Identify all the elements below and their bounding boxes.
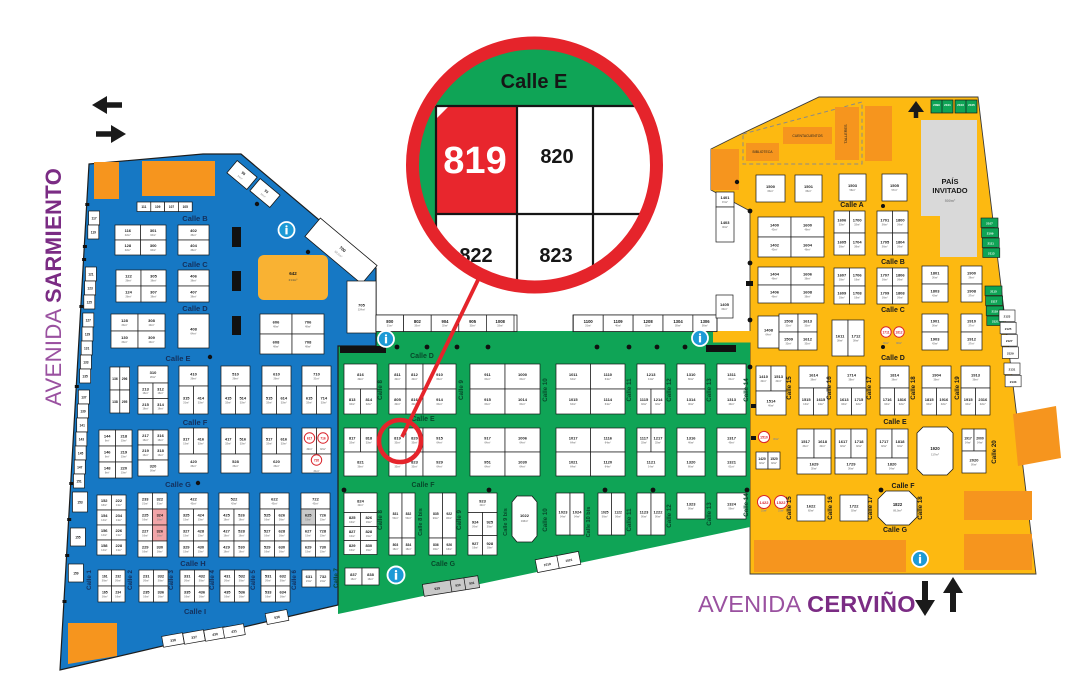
svg-text:26m²: 26m²	[882, 222, 888, 226]
svg-text:16m²: 16m²	[142, 453, 148, 457]
svg-text:26m²: 26m²	[882, 244, 888, 248]
svg-text:1708: 1708	[853, 291, 863, 296]
svg-text:905: 905	[469, 319, 477, 324]
svg-text:533: 533	[265, 590, 272, 595]
svg-text:40m²: 40m²	[728, 440, 734, 444]
svg-text:1323: 1323	[687, 502, 697, 507]
svg-text:1313: 1313	[727, 397, 737, 402]
svg-text:1606: 1606	[803, 272, 813, 277]
svg-text:1917: 1917	[964, 437, 972, 441]
svg-text:18m²: 18m²	[854, 277, 860, 281]
svg-text:430: 430	[197, 545, 204, 550]
svg-text:16m²: 16m²	[882, 277, 888, 281]
svg-text:Calle A: Calle A	[840, 202, 863, 209]
svg-text:922: 922	[446, 512, 452, 516]
svg-text:436: 436	[198, 590, 205, 595]
svg-text:326: 326	[156, 529, 163, 534]
svg-text:39m²: 39m²	[933, 377, 939, 381]
svg-text:1717: 1717	[880, 439, 890, 444]
svg-text:18m²: 18m²	[433, 547, 439, 551]
svg-text:31m²: 31m²	[761, 509, 767, 513]
svg-text:309: 309	[148, 335, 155, 340]
svg-text:143: 143	[79, 437, 85, 441]
svg-text:42m²: 42m²	[190, 501, 196, 505]
svg-text:36m²: 36m²	[190, 278, 196, 282]
svg-text:Calle C: Calle C	[881, 307, 905, 314]
svg-text:26m²: 26m²	[897, 295, 903, 299]
svg-text:816: 816	[357, 372, 364, 377]
svg-text:1618: 1618	[818, 439, 828, 444]
svg-text:124m²: 124m²	[358, 307, 366, 311]
svg-text:1006: 1006	[518, 436, 528, 441]
svg-text:33m²: 33m²	[802, 444, 808, 448]
svg-text:229: 229	[142, 545, 149, 550]
svg-text:32m²: 32m²	[771, 461, 777, 465]
svg-text:1514: 1514	[767, 399, 777, 404]
svg-text:532: 532	[238, 574, 245, 579]
svg-text:32m²: 32m²	[394, 464, 400, 468]
svg-text:1015: 1015	[569, 397, 579, 402]
svg-text:Calle 9: Calle 9	[456, 509, 463, 530]
svg-text:27m²: 27m²	[968, 341, 974, 345]
svg-text:928: 928	[486, 541, 493, 546]
svg-text:1712: 1712	[852, 334, 862, 339]
svg-text:1405: 1405	[720, 302, 730, 307]
svg-text:614: 614	[280, 396, 287, 401]
svg-text:925: 925	[486, 520, 493, 525]
svg-text:213: 213	[142, 386, 149, 391]
svg-text:39m²: 39m²	[357, 464, 363, 468]
svg-text:931: 931	[469, 581, 475, 586]
svg-text:Calle 13: Calle 13	[706, 502, 713, 526]
svg-text:145: 145	[78, 451, 84, 455]
svg-text:20m²: 20m²	[184, 578, 190, 582]
svg-text:1114: 1114	[604, 397, 613, 402]
svg-text:1311: 1311	[727, 372, 736, 377]
svg-text:800: 800	[386, 319, 394, 324]
svg-text:38m²: 38m²	[804, 276, 810, 280]
svg-text:138: 138	[112, 400, 118, 404]
svg-text:317: 317	[183, 437, 190, 442]
svg-text:1316: 1316	[687, 436, 697, 441]
svg-text:2117: 2117	[991, 300, 998, 304]
svg-text:20m²: 20m²	[158, 578, 164, 582]
svg-text:828: 828	[365, 529, 372, 534]
svg-text:2107: 2107	[986, 222, 993, 226]
svg-text:832: 832	[406, 512, 412, 516]
svg-text:64m²: 64m²	[605, 377, 611, 381]
svg-text:62m²: 62m²	[808, 508, 814, 512]
svg-text:32m²: 32m²	[414, 324, 420, 328]
svg-text:1122: 1122	[615, 511, 622, 515]
svg-text:1422: 1422	[760, 500, 770, 505]
svg-text:228: 228	[115, 543, 122, 548]
svg-text:820: 820	[540, 146, 573, 168]
svg-text:139: 139	[80, 409, 86, 413]
svg-text:109: 109	[155, 205, 161, 209]
svg-text:627: 627	[305, 529, 312, 534]
svg-text:50m²: 50m²	[655, 514, 661, 518]
svg-text:18m²: 18m²	[101, 503, 107, 507]
svg-text:1608: 1608	[803, 290, 813, 295]
svg-text:826: 826	[365, 515, 372, 520]
svg-text:406: 406	[190, 274, 197, 279]
svg-text:18m²: 18m²	[446, 547, 452, 551]
svg-text:812: 812	[411, 372, 418, 377]
svg-text:20m²: 20m²	[224, 578, 230, 582]
svg-text:43m²: 43m²	[932, 341, 938, 345]
svg-text:Calle 16: Calle 16	[826, 376, 833, 400]
svg-text:135: 135	[82, 374, 88, 378]
svg-text:32m²: 32m²	[645, 324, 651, 328]
svg-text:23m²: 23m²	[121, 323, 127, 327]
svg-text:Calle 9: Calle 9	[458, 379, 465, 400]
svg-text:43m²: 43m²	[771, 227, 777, 231]
svg-text:36m²: 36m²	[150, 278, 156, 282]
svg-text:300: 300	[150, 243, 157, 248]
svg-text:33m²: 33m²	[641, 440, 647, 444]
svg-text:1116: 1116	[604, 436, 613, 441]
svg-text:Calle 1: Calle 1	[86, 569, 93, 590]
svg-text:1818: 1818	[896, 439, 906, 444]
svg-text:32m²: 32m²	[394, 440, 400, 444]
svg-text:32m²: 32m²	[349, 440, 355, 444]
svg-text:122: 122	[125, 274, 132, 279]
svg-text:830: 830	[365, 543, 372, 548]
svg-text:2103: 2103	[957, 103, 964, 107]
svg-text:331: 331	[184, 574, 191, 579]
svg-text:1402: 1402	[770, 243, 780, 248]
svg-text:1607: 1607	[837, 273, 847, 278]
svg-text:1611: 1611	[836, 334, 845, 339]
svg-text:39m²: 39m²	[883, 341, 889, 345]
svg-text:38m²: 38m²	[804, 294, 810, 298]
svg-text:802: 802	[414, 319, 422, 324]
svg-text:40m²: 40m²	[615, 324, 621, 328]
svg-text:48m²: 48m²	[305, 344, 311, 348]
svg-text:1913: 1913	[971, 373, 981, 378]
svg-text:29m²: 29m²	[125, 294, 131, 298]
svg-text:234: 234	[115, 513, 122, 518]
svg-text:Calle 5: Calle 5	[250, 569, 257, 590]
svg-text:1522: 1522	[777, 500, 787, 505]
svg-text:1109: 1109	[614, 319, 624, 324]
svg-text:Calle 4: Calle 4	[209, 569, 216, 590]
svg-text:42m²: 42m²	[357, 503, 363, 507]
svg-text:1110: 1110	[604, 372, 613, 377]
svg-text:16m²: 16m²	[349, 520, 355, 524]
svg-text:30m²: 30m²	[932, 275, 938, 279]
svg-text:BIBLIOTECA: BIBLIOTECA	[753, 150, 774, 154]
svg-text:1023: 1023	[559, 510, 569, 515]
svg-text:728: 728	[319, 529, 326, 534]
svg-text:136: 136	[112, 377, 118, 381]
svg-text:16m²: 16m²	[238, 533, 244, 537]
svg-text:130: 130	[121, 335, 128, 340]
svg-text:24m²: 24m²	[889, 466, 895, 470]
svg-text:26m²: 26m²	[702, 324, 708, 328]
svg-text:40m²: 40m²	[728, 402, 734, 406]
svg-text:38m²: 38m²	[854, 244, 860, 248]
svg-text:322: 322	[156, 497, 163, 502]
svg-text:1030: 1030	[518, 460, 528, 465]
svg-text:50m²: 50m²	[641, 514, 647, 518]
svg-text:21m²: 21m²	[157, 501, 163, 505]
svg-text:835: 835	[433, 512, 439, 516]
svg-text:1915: 1915	[964, 397, 974, 402]
svg-text:16m²: 16m²	[157, 391, 163, 395]
svg-text:308: 308	[148, 318, 155, 323]
svg-text:1808: 1808	[896, 291, 906, 296]
svg-text:Calle 15: Calle 15	[786, 496, 793, 520]
svg-text:26m²: 26m²	[971, 462, 977, 466]
svg-text:16m²: 16m²	[142, 533, 148, 537]
svg-text:1500: 1500	[766, 184, 776, 189]
svg-text:2113: 2113	[988, 252, 995, 256]
svg-text:Calle 19: Calle 19	[954, 376, 961, 400]
svg-text:31m²: 31m²	[313, 376, 319, 380]
svg-text:911: 911	[484, 372, 491, 377]
svg-text:15m²: 15m²	[183, 441, 189, 445]
svg-text:18m²: 18m²	[405, 547, 411, 551]
svg-text:616: 616	[280, 437, 287, 442]
svg-text:27m²: 27m²	[968, 323, 974, 327]
svg-text:1024: 1024	[573, 510, 583, 515]
svg-text:314: 314	[157, 402, 164, 407]
svg-text:510: 510	[232, 372, 239, 377]
svg-text:Calle B: Calle B	[881, 259, 905, 266]
svg-text:61m²: 61m²	[728, 464, 734, 468]
svg-text:1903: 1903	[931, 337, 941, 342]
svg-text:16m²: 16m²	[142, 438, 148, 442]
svg-text:15m²: 15m²	[183, 533, 189, 537]
svg-text:2101: 2101	[944, 103, 951, 107]
svg-text:18m²: 18m²	[472, 546, 478, 550]
svg-text:20m²: 20m²	[472, 524, 478, 528]
svg-text:128: 128	[124, 243, 131, 248]
svg-text:231: 231	[143, 574, 150, 579]
svg-text:528: 528	[238, 529, 245, 534]
svg-text:Calle F: Calle F	[183, 418, 208, 427]
svg-text:1515: 1515	[802, 397, 812, 402]
svg-text:720: 720	[314, 459, 320, 463]
svg-text:16m²: 16m²	[184, 594, 190, 598]
svg-text:Calle F: Calle F	[892, 483, 916, 490]
svg-text:16m²: 16m²	[238, 549, 244, 553]
svg-text:60m²: 60m²	[688, 464, 694, 468]
svg-text:29m²: 29m²	[125, 278, 131, 282]
svg-text:117m²: 117m²	[931, 453, 939, 457]
svg-text:428: 428	[197, 529, 204, 534]
svg-text:525: 525	[264, 513, 271, 518]
svg-text:18m²: 18m²	[392, 547, 398, 551]
svg-text:407: 407	[190, 290, 197, 295]
svg-text:924: 924	[472, 520, 479, 525]
svg-text:1408: 1408	[764, 328, 774, 333]
svg-text:32m²: 32m²	[394, 402, 400, 406]
svg-text:Calle 6: Calle 6	[291, 569, 298, 590]
svg-text:226: 226	[115, 528, 122, 533]
svg-text:813: 813	[349, 397, 356, 402]
svg-text:838: 838	[367, 572, 374, 577]
svg-text:1503: 1503	[848, 183, 858, 188]
svg-text:16m²: 16m²	[157, 407, 163, 411]
svg-text:1304: 1304	[673, 319, 683, 324]
svg-text:9m²: 9m²	[105, 470, 110, 474]
svg-text:38m²: 38m²	[839, 244, 845, 248]
svg-text:16m²: 16m²	[264, 533, 270, 537]
svg-text:819: 819	[443, 140, 506, 182]
svg-text:2119: 2119	[991, 310, 998, 314]
svg-text:40m²: 40m²	[722, 225, 728, 229]
svg-text:825: 825	[349, 515, 356, 520]
svg-text:32m²: 32m²	[150, 233, 156, 237]
svg-text:318: 318	[157, 448, 164, 453]
svg-text:15m²: 15m²	[121, 438, 127, 442]
svg-text:Calle D: Calle D	[182, 304, 208, 313]
svg-text:29m²: 29m²	[190, 376, 196, 380]
svg-text:2111: 2111	[988, 242, 995, 246]
svg-text:31m²: 31m²	[585, 324, 591, 328]
svg-text:1510: 1510	[760, 436, 768, 440]
svg-text:9m²: 9m²	[105, 454, 110, 458]
svg-text:90m²: 90m²	[446, 516, 452, 520]
svg-text:1306: 1306	[700, 319, 710, 324]
svg-text:151: 151	[76, 479, 82, 483]
svg-text:435: 435	[224, 590, 231, 595]
svg-text:1612: 1612	[803, 337, 813, 342]
svg-text:16m²: 16m²	[158, 594, 164, 598]
svg-text:49m²: 49m²	[804, 247, 810, 251]
svg-text:1120: 1120	[603, 460, 612, 465]
svg-text:30m²: 30m²	[848, 466, 854, 470]
svg-text:336: 336	[157, 590, 164, 595]
svg-text:Calle D: Calle D	[881, 355, 905, 362]
svg-text:1121: 1121	[647, 460, 656, 465]
svg-text:432: 432	[198, 574, 205, 579]
svg-text:527: 527	[264, 529, 271, 534]
svg-text:1115: 1115	[640, 397, 649, 402]
svg-text:1609: 1609	[837, 291, 847, 296]
svg-text:29m²: 29m²	[232, 376, 238, 380]
svg-text:20m²: 20m²	[115, 578, 121, 582]
svg-text:32m²: 32m²	[240, 400, 246, 404]
svg-text:625: 625	[305, 513, 312, 518]
svg-text:1324: 1324	[727, 502, 737, 507]
svg-text:23m²: 23m²	[121, 340, 127, 344]
svg-text:32m²: 32m²	[881, 444, 887, 448]
svg-text:617: 617	[307, 437, 313, 441]
svg-text:818: 818	[365, 436, 372, 441]
svg-text:1517: 1517	[801, 439, 811, 444]
svg-text:708: 708	[305, 340, 312, 345]
svg-text:634: 634	[279, 590, 286, 595]
svg-text:61m²: 61m²	[728, 377, 734, 381]
svg-text:32m²: 32m²	[320, 447, 326, 451]
svg-text:2133: 2133	[1010, 380, 1017, 384]
svg-text:16m²: 16m²	[366, 548, 372, 552]
svg-text:16m²: 16m²	[157, 453, 163, 457]
svg-text:1814: 1814	[890, 373, 900, 378]
svg-text:32m²: 32m²	[125, 233, 131, 237]
svg-text:32m²: 32m²	[839, 222, 845, 226]
svg-text:814: 814	[365, 397, 372, 402]
svg-text:726: 726	[319, 513, 326, 518]
svg-text:48m²: 48m²	[273, 324, 279, 328]
svg-text:155: 155	[75, 535, 81, 539]
svg-text:917: 917	[484, 436, 491, 441]
svg-text:24m²: 24m²	[306, 579, 312, 583]
svg-text:32m²: 32m²	[840, 444, 846, 448]
svg-text:829: 829	[349, 543, 356, 548]
svg-text:1912: 1912	[967, 337, 977, 342]
svg-text:811: 811	[394, 372, 401, 377]
svg-text:16m²: 16m²	[366, 520, 372, 524]
svg-text:1214: 1214	[654, 397, 664, 402]
svg-text:320: 320	[150, 464, 157, 469]
svg-text:14m²: 14m²	[648, 464, 654, 468]
svg-text:60m²: 60m²	[721, 307, 727, 311]
svg-text:15m²: 15m²	[305, 533, 311, 537]
svg-text:516: 516	[239, 437, 246, 442]
svg-text:706: 706	[305, 320, 312, 325]
svg-text:64m²: 64m²	[765, 332, 771, 336]
svg-text:1501: 1501	[804, 184, 814, 189]
svg-text:64m²: 64m²	[605, 440, 611, 444]
svg-text:325: 325	[183, 513, 190, 518]
svg-text:32m²: 32m²	[819, 444, 825, 448]
svg-text:16m²: 16m²	[264, 517, 270, 521]
svg-text:111: 111	[141, 205, 146, 209]
svg-text:1600: 1600	[803, 223, 813, 228]
svg-text:1117: 1117	[640, 436, 649, 441]
svg-text:15m²: 15m²	[320, 533, 326, 537]
svg-text:Calle F: Calle F	[412, 482, 436, 489]
svg-text:133: 133	[83, 360, 89, 364]
svg-text:Calle 8: Calle 8	[377, 379, 384, 400]
svg-text:417: 417	[225, 437, 232, 442]
svg-text:1123: 1123	[640, 510, 649, 515]
svg-text:TALLERES: TALLERES	[844, 124, 848, 144]
svg-text:15m²: 15m²	[121, 470, 127, 474]
svg-text:416: 416	[197, 437, 204, 442]
svg-text:43m²: 43m²	[771, 247, 777, 251]
svg-text:32m²: 32m²	[366, 440, 372, 444]
svg-text:125: 125	[87, 300, 93, 304]
svg-text:1729: 1729	[847, 462, 857, 467]
svg-text:1910: 1910	[967, 319, 977, 324]
svg-text:1021: 1021	[569, 460, 579, 465]
svg-text:26m²: 26m²	[897, 244, 903, 248]
svg-text:161: 161	[102, 575, 108, 579]
svg-text:16m²: 16m²	[199, 594, 205, 598]
svg-text:32m²: 32m²	[980, 402, 986, 406]
svg-text:16m²: 16m²	[142, 407, 148, 411]
svg-text:165: 165	[102, 591, 108, 595]
svg-text:220: 220	[120, 466, 127, 471]
svg-text:Calle 7: Calle 7	[333, 567, 340, 588]
svg-text:1801: 1801	[931, 271, 941, 276]
svg-text:32m²: 32m²	[442, 324, 448, 328]
svg-text:1706: 1706	[853, 273, 863, 278]
svg-text:32m²: 32m²	[198, 400, 204, 404]
svg-text:90m²: 90m²	[433, 516, 439, 520]
svg-text:31m²: 31m²	[778, 509, 784, 513]
svg-text:24m²: 24m²	[977, 440, 983, 444]
svg-text:32m²: 32m²	[394, 377, 400, 381]
svg-text:1629: 1629	[810, 462, 820, 467]
svg-text:517: 517	[266, 437, 273, 442]
